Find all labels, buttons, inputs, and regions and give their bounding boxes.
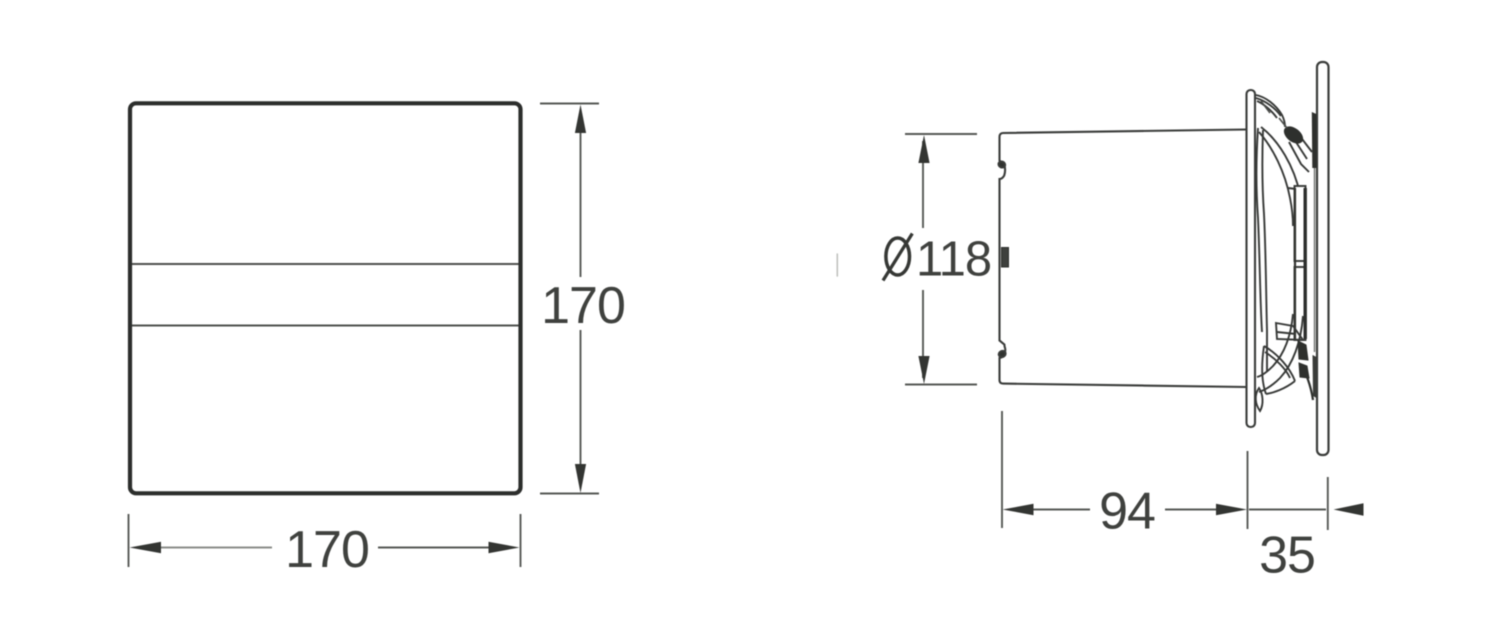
svg-text:170: 170: [285, 521, 369, 579]
svg-text:94: 94: [1099, 483, 1155, 541]
svg-text:118: 118: [916, 233, 991, 287]
svg-text:35: 35: [1259, 527, 1315, 585]
svg-text:170: 170: [541, 277, 625, 335]
